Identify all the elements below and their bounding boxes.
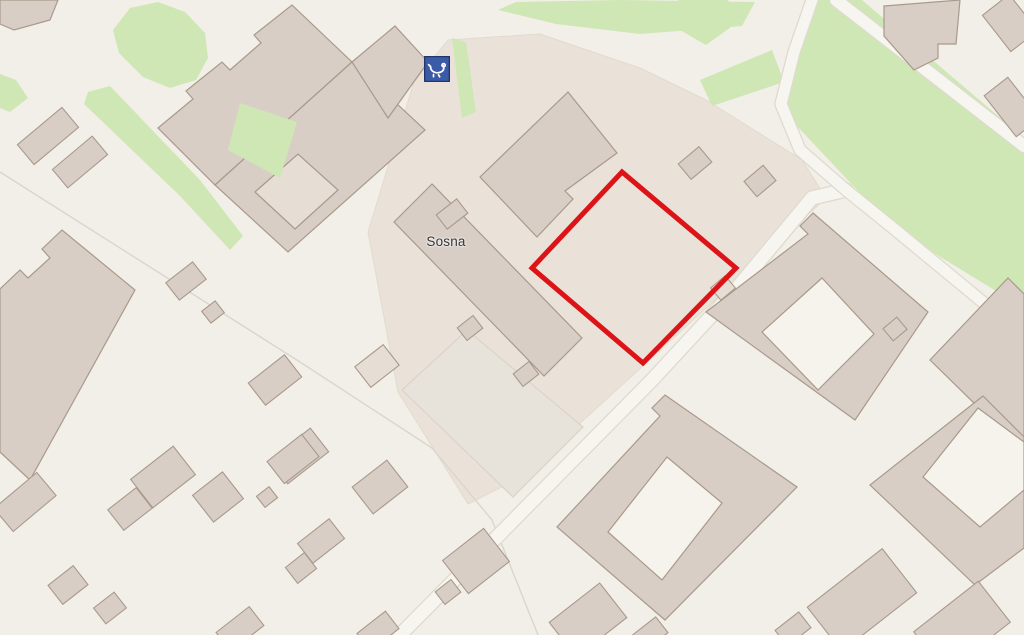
post-office-marker[interactable] <box>424 56 450 82</box>
building-name-label: Sosna <box>421 234 471 249</box>
post-horn-icon <box>424 56 450 82</box>
map-canvas[interactable] <box>0 0 1024 635</box>
map-viewport[interactable]: Sosna <box>0 0 1024 635</box>
